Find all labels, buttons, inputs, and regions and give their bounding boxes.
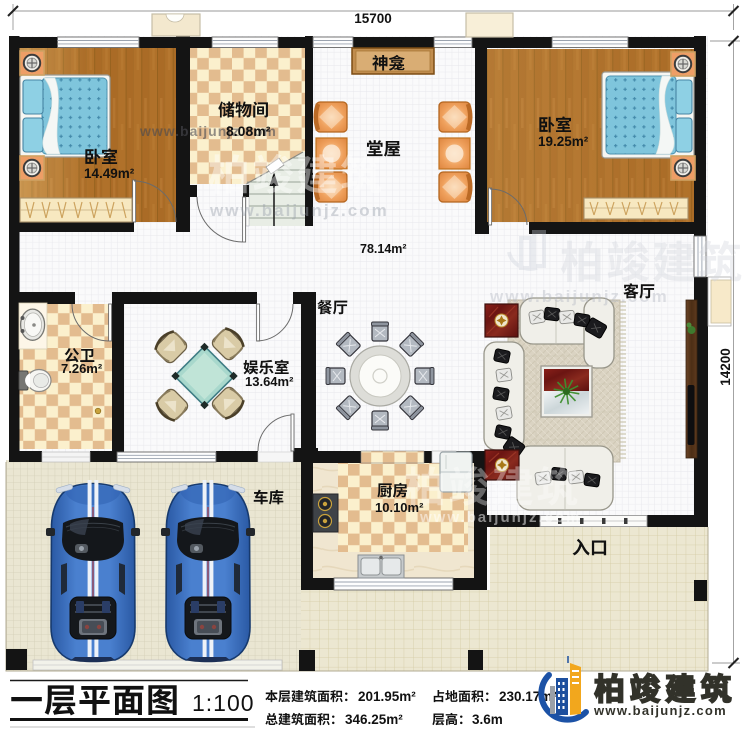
svg-text:15700: 15700 xyxy=(354,11,392,26)
svg-text:346.25m²: 346.25m² xyxy=(345,712,403,727)
svg-text:10.10m²: 10.10m² xyxy=(375,500,424,515)
svg-text:3.6m: 3.6m xyxy=(472,712,503,727)
svg-text:14.49m²: 14.49m² xyxy=(84,166,135,181)
svg-text:8.08m²: 8.08m² xyxy=(226,123,271,139)
svg-text:www.baijunjz.com: www.baijunjz.com xyxy=(593,703,727,718)
svg-text:14200: 14200 xyxy=(718,348,733,386)
svg-text:19.25m²: 19.25m² xyxy=(538,134,589,149)
svg-text:230.17m²: 230.17m² xyxy=(499,689,557,704)
svg-text:78.14m²: 78.14m² xyxy=(360,242,407,256)
svg-text:www.baijunjz.com: www.baijunjz.com xyxy=(209,201,389,220)
svg-text:13.64m²: 13.64m² xyxy=(245,374,294,389)
svg-text:201.95m²: 201.95m² xyxy=(358,689,416,704)
svg-text:1:100: 1:100 xyxy=(192,690,255,716)
svg-text:www.baijunjz.com: www.baijunjz.com xyxy=(419,509,581,526)
svg-text:7.26m²: 7.26m² xyxy=(61,361,103,376)
